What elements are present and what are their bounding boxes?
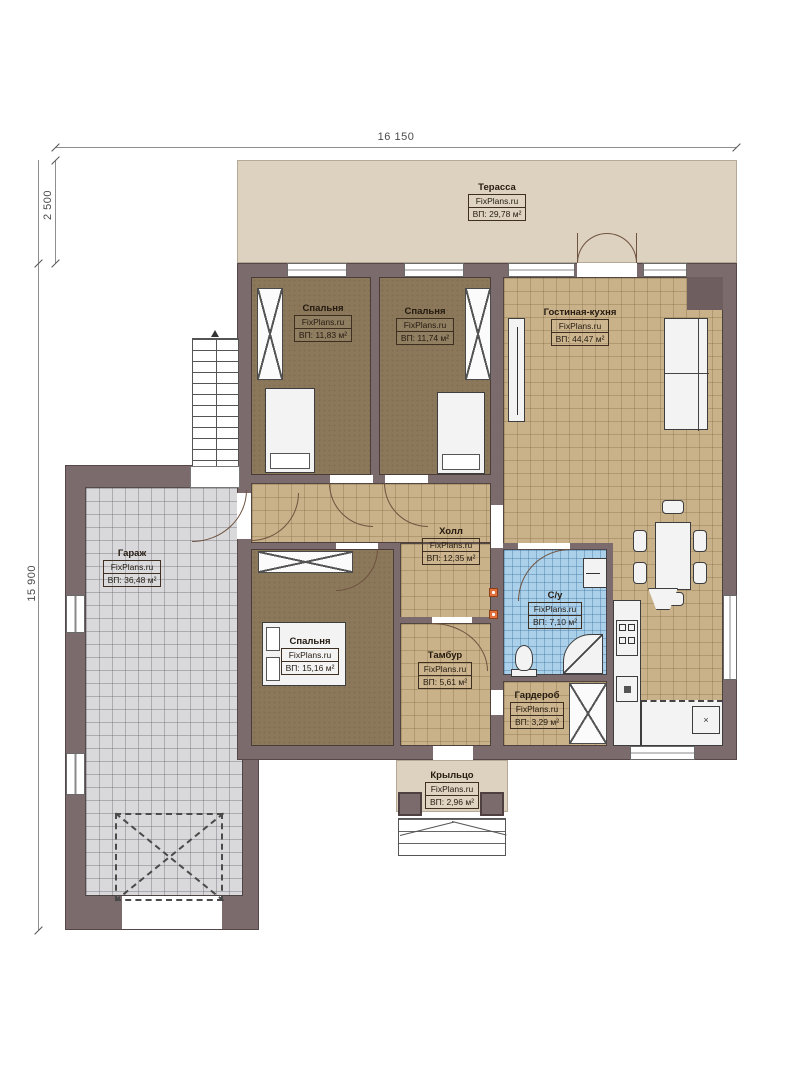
kitchen-sink	[616, 676, 638, 702]
dining-table	[655, 522, 691, 590]
doorway-bathroom	[518, 543, 570, 549]
wall-bedroom3-tambur	[394, 549, 400, 746]
room-label-wardrobe: Гардероб FixPlans.ruВП: 3,29 м²	[489, 690, 585, 729]
room-label-terrace: Терасса FixPlans.ruВП: 29,78 м²	[447, 182, 547, 221]
entry-landing	[190, 466, 240, 488]
room-label-bedroom1: Спальня FixPlans.ruВП: 11,83 м²	[273, 303, 373, 342]
room-label-garage: Гараж FixPlans.ruВП: 36,48 м²	[82, 548, 182, 587]
doorway-terrace	[577, 263, 637, 277]
bedroom3-closet	[258, 551, 353, 573]
toilet-bowl	[515, 645, 533, 671]
doorway-bedroom1	[330, 475, 373, 483]
garage-window	[66, 753, 85, 795]
room-label-porch: Крыльцо FixPlans.ruВП: 2,96 м²	[404, 770, 500, 809]
room-label-bedroom3: Спальня FixPlans.ruВП: 15,16 м²	[262, 636, 358, 675]
dining-chair	[633, 530, 647, 552]
dining-chair	[693, 562, 707, 584]
window-bedroom2	[404, 263, 464, 277]
window-living-left	[508, 263, 575, 277]
window-living-right	[643, 263, 687, 277]
room-label-living-kitchen: Гостиная-кухня FixPlans.ruВП: 44,47 м²	[520, 307, 640, 346]
bedroom1-bed	[265, 388, 315, 473]
room-label-hall: Холл FixPlans.ruВП: 12,35 м²	[403, 526, 499, 565]
wall-corner-pier	[687, 277, 723, 310]
room-label-bedroom2: Спальня FixPlans.ruВП: 11,74 м²	[377, 306, 473, 345]
terrace-door-leaf	[636, 233, 637, 263]
flue-marker	[489, 588, 498, 597]
dimension-top-label: 16 150	[360, 131, 432, 143]
stairs-direction-arrow	[211, 330, 219, 337]
sink-cross-mark: ×	[692, 706, 720, 734]
floor-plan: 16 150 15 900 2 500	[0, 0, 792, 1080]
doorway-hall-tambur	[432, 617, 472, 623]
window-living-side	[723, 595, 737, 680]
dimension-line-top	[55, 147, 737, 148]
dimension-terrace-label: 2 500	[42, 190, 54, 220]
flue-marker	[489, 610, 498, 619]
doorway-front-entry	[433, 746, 473, 760]
doorway-bedroom2	[385, 475, 428, 483]
dining-chair	[693, 530, 707, 552]
dining-chair	[633, 562, 647, 584]
terrace-door-leaf	[577, 233, 578, 263]
stove	[616, 620, 638, 656]
room-label-bathroom: С/у FixPlans.ruВП: 7,10 м²	[507, 590, 603, 629]
washing-machine	[583, 558, 607, 588]
window-bedroom1	[287, 263, 347, 277]
porch-steps	[398, 818, 506, 856]
bedroom2-bed	[437, 392, 485, 474]
room-label-tambur: Тамбур FixPlans.ruВП: 5,61 м²	[397, 650, 493, 689]
living-cabinet	[664, 318, 708, 430]
dimension-line-left-inner	[55, 160, 56, 263]
garage-window	[66, 595, 85, 633]
dimension-left-label: 15 900	[26, 565, 38, 602]
exterior-stairs	[192, 338, 239, 470]
dimension-line-left-outer	[38, 160, 39, 930]
window-kitchen	[630, 746, 695, 760]
dining-chair	[662, 500, 684, 514]
